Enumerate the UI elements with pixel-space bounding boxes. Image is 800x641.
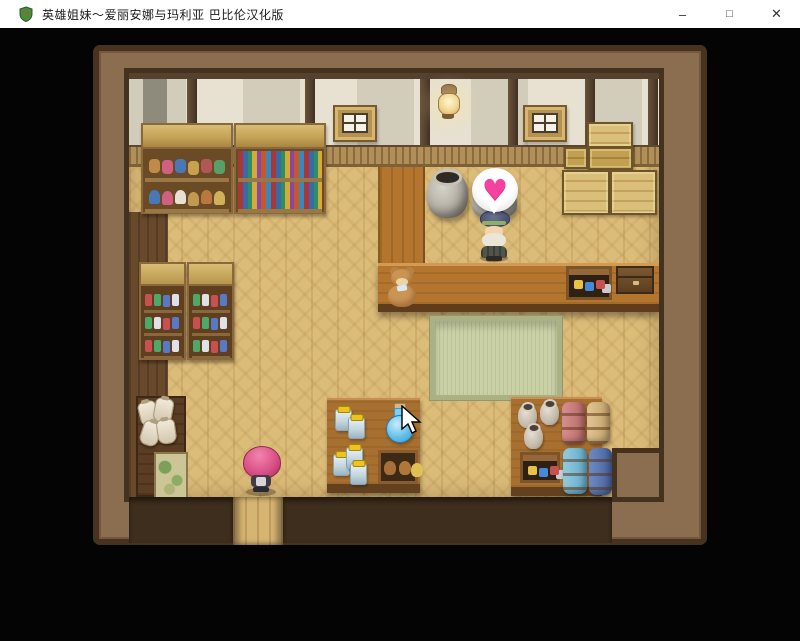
- minimize-button[interactable]: –: [659, 0, 706, 28]
- wooden-box-closed: [616, 266, 654, 294]
- potion-jar-shelf-1: [139, 262, 186, 360]
- toy-shelf: [141, 123, 233, 214]
- window-controls: – □ ✕: [659, 0, 800, 28]
- window-right: [523, 105, 567, 142]
- potion-jar-shelf-2: [187, 262, 234, 360]
- south-wall-right: [283, 497, 612, 543]
- south-exit-walkway[interactable]: [233, 497, 283, 545]
- app-icon: [18, 6, 34, 22]
- mouse-cursor: [400, 405, 422, 435]
- cloth-bale-blue: [589, 448, 612, 495]
- cloth-bale-tan: [587, 402, 610, 444]
- crate: [562, 170, 610, 215]
- window-titlebar[interactable]: 英雄姐妹～爱丽安娜与玛利亚 巴比伦汉化版 – □ ✕: [0, 0, 800, 29]
- window-left: [333, 105, 377, 142]
- crate: [587, 122, 633, 148]
- flour-sack: [155, 418, 177, 445]
- tatami-mat: [430, 316, 562, 400]
- clay-pot-1: [427, 171, 468, 218]
- south-wall-left: [129, 497, 233, 543]
- goods-box: [520, 452, 560, 483]
- screenshot-root: 英雄姐妹～爱丽安娜与玛利亚 巴比伦汉化版 – □ ✕: [0, 0, 800, 641]
- glass-jar: [350, 463, 367, 485]
- heart-icon: ♥: [482, 176, 508, 205]
- cloth-bale-pink: [562, 402, 585, 444]
- jug-crate: [378, 450, 418, 484]
- player-character[interactable]: [243, 446, 279, 496]
- wall-beam: [508, 79, 518, 145]
- window-panes: [342, 113, 368, 133]
- window-panes: [532, 113, 558, 133]
- window-title: 英雄姐妹～爱丽安娜与玛利亚 巴比伦汉化版: [42, 6, 284, 23]
- wall-beam: [648, 79, 658, 145]
- game-viewport[interactable]: ♥: [0, 28, 800, 641]
- tool-chest-open: [566, 266, 612, 300]
- map-scroll: [154, 452, 188, 500]
- close-button[interactable]: ✕: [753, 0, 800, 28]
- cloth-bale-lightblue: [563, 448, 587, 494]
- teddy-bear: [384, 265, 420, 309]
- room-interior: ♥: [124, 68, 664, 502]
- maximize-button[interactable]: □: [706, 0, 753, 28]
- counter-vertical: [378, 167, 425, 263]
- hanging-lantern-icon: [436, 84, 460, 126]
- wall-beam: [420, 79, 430, 145]
- bookshelf: [234, 123, 326, 214]
- crate: [588, 147, 633, 170]
- crate: [610, 170, 657, 215]
- glass-jar: [348, 417, 365, 439]
- ceramic-jug: [540, 401, 559, 425]
- crate: [564, 147, 588, 169]
- heart-emote-bubble: ♥: [472, 168, 518, 212]
- southeast-wall-step: [612, 448, 659, 497]
- ceramic-jug: [524, 425, 543, 449]
